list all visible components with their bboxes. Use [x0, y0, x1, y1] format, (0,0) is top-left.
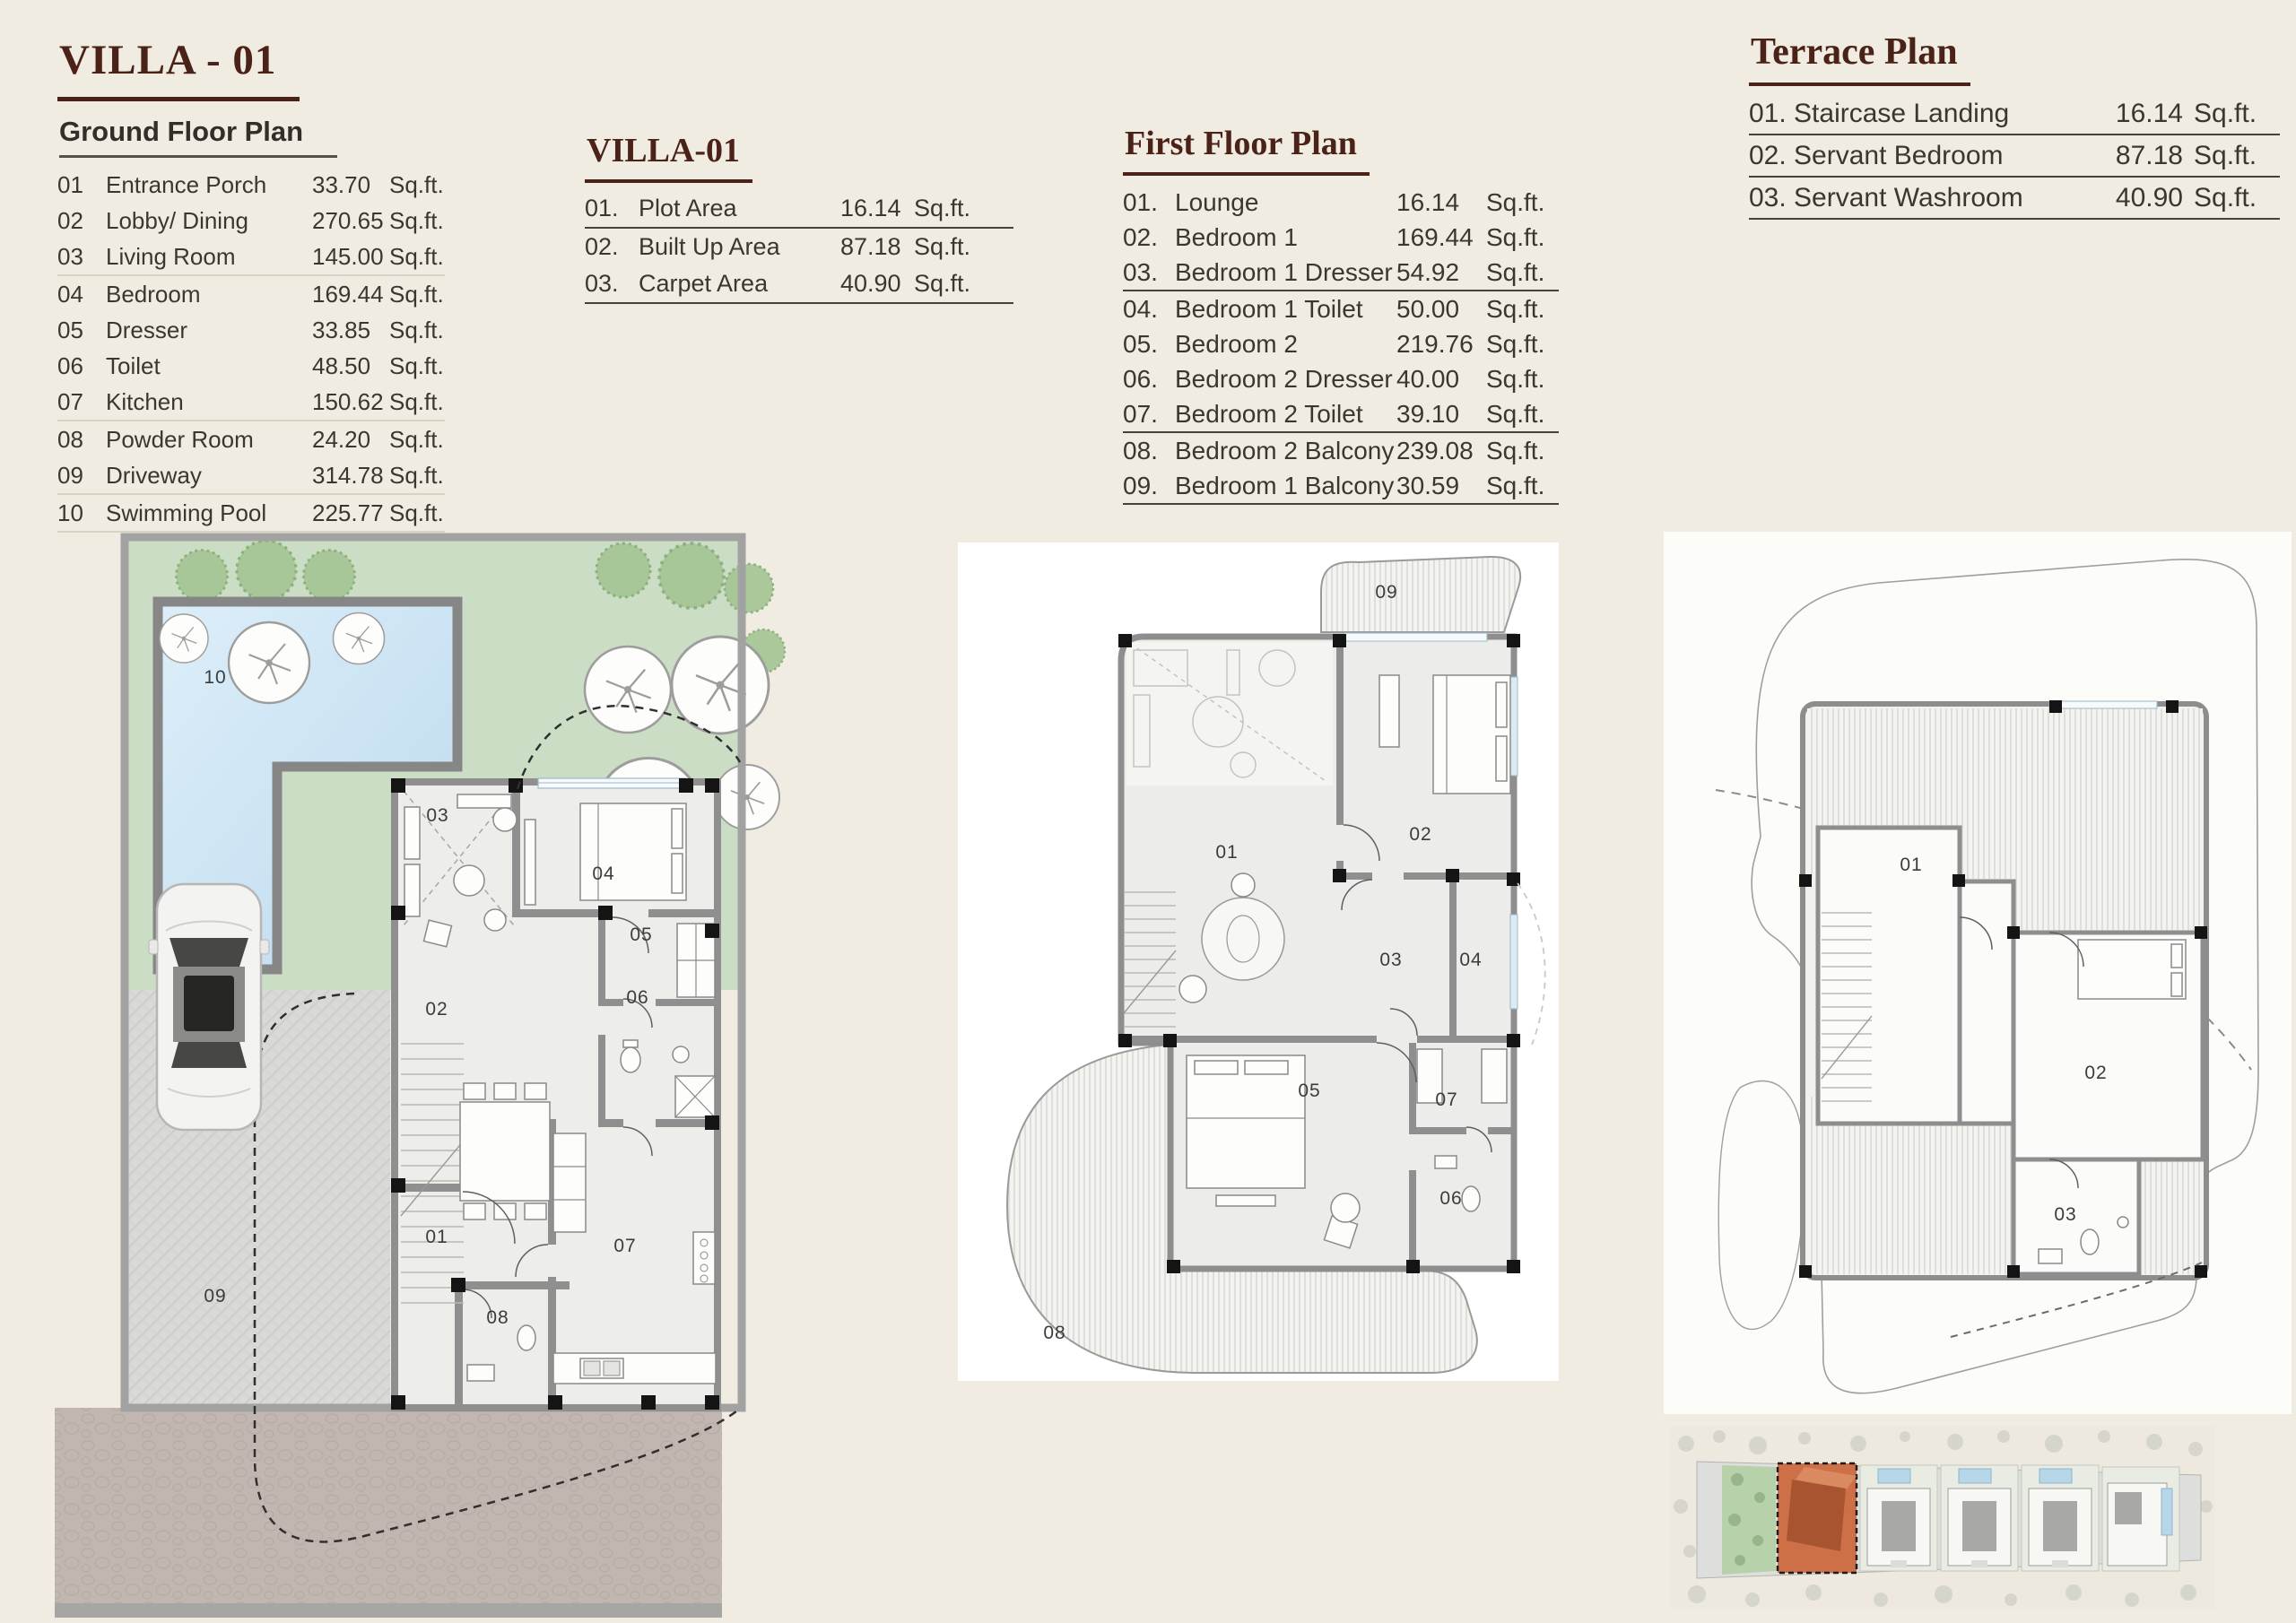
cell-name: 02. Servant Bedroom	[1749, 141, 2083, 171]
cell-num: 03	[57, 243, 106, 271]
cell-value: 39.10	[1396, 400, 1486, 429]
ground-building	[391, 778, 719, 1410]
cell-value: 16.14	[840, 195, 914, 222]
cell-value: 150.62	[312, 388, 389, 416]
cell-unit: Sq.ft.	[914, 233, 1013, 261]
cell-name: Carpet Area	[639, 270, 840, 298]
room-number-label: 08	[1043, 1323, 1065, 1343]
staircase-landing-room	[1818, 828, 1960, 1124]
villa-info-title: VILLA-01	[585, 131, 752, 183]
site-plan-drawing	[1670, 1426, 2215, 1610]
table-row: 02.Built Up Area87.18Sq.ft.	[585, 229, 1013, 265]
cell-name: 01. Staircase Landing	[1749, 99, 2083, 129]
room-number-label: 09	[1375, 582, 1397, 603]
table-row: 01. Staircase Landing16.14Sq.ft.	[1749, 93, 2280, 135]
table-row: 03.Carpet Area40.90Sq.ft.	[585, 265, 1013, 304]
balcony-09	[1321, 557, 1520, 632]
cell-value: 219.76	[1396, 330, 1486, 359]
cell-num: 05	[57, 317, 106, 344]
terrace-plan-drawing: 010203	[1664, 532, 2292, 1414]
cell-name: Entrance Porch	[106, 171, 312, 199]
cell-value: 54.92	[1396, 258, 1486, 287]
cell-num: 04	[57, 281, 106, 308]
cell-unit: Sq.ft.	[389, 171, 445, 199]
cell-num: 09.	[1123, 472, 1175, 500]
cell-value: 40.90	[840, 270, 914, 298]
room-number-label: 03	[2054, 1204, 2076, 1225]
cell-num: 06	[57, 352, 106, 380]
cell-unit: Sq.ft.	[389, 388, 445, 416]
cell-value: 145.00	[312, 243, 389, 271]
cell-value: 33.85	[312, 317, 389, 344]
villa-title: VILLA - 01	[57, 36, 300, 101]
cell-num: 04.	[1123, 295, 1175, 324]
room-number-label: 06	[626, 987, 648, 1008]
cell-value: 87.18	[2083, 141, 2183, 171]
table-row: 05.Bedroom 2219.76Sq.ft.	[1123, 326, 1559, 361]
room-number-label: 03	[1379, 950, 1402, 970]
cell-num: 07	[57, 388, 106, 416]
room-number-label: 10	[204, 667, 226, 688]
room-number-label: 05	[630, 924, 652, 945]
cell-unit: Sq.ft.	[1486, 330, 1559, 359]
cell-num: 03.	[585, 270, 639, 298]
terrace-table: 01. Staircase Landing16.14Sq.ft.02. Serv…	[1749, 93, 2280, 220]
first-floor-title: First Floor Plan	[1123, 124, 1370, 176]
cell-value: 270.65	[312, 207, 389, 235]
first-floor-section: First Floor Plan 01.Lounge16.14Sq.ft.02.…	[1123, 124, 1559, 505]
cell-unit: Sq.ft.	[389, 317, 445, 344]
table-row: 02.Bedroom 1169.44Sq.ft.	[1123, 220, 1559, 255]
ground-floor-section: VILLA - 01 Ground Floor Plan 01Entrance …	[57, 36, 445, 533]
cell-value: 239.08	[1396, 437, 1486, 465]
cell-num: 02	[57, 207, 106, 235]
cell-unit: Sq.ft.	[1486, 258, 1559, 287]
cell-unit: Sq.ft.	[2183, 141, 2280, 171]
site-villa-highlighted	[1778, 1463, 1857, 1573]
cell-num: 08	[57, 426, 106, 454]
road-edge-strip	[55, 1603, 722, 1618]
table-row: 02. Servant Bedroom87.18Sq.ft.	[1749, 135, 2280, 178]
cell-unit: Sq.ft.	[389, 426, 445, 454]
cell-num: 02.	[1123, 223, 1175, 252]
table-row: 01.Lounge16.14Sq.ft.	[1123, 185, 1559, 220]
table-row: 09Driveway314.78Sq.ft.	[57, 457, 445, 495]
cell-name: Bedroom 1 Dresser	[1175, 258, 1396, 287]
cell-unit: Sq.ft.	[1486, 295, 1559, 324]
cell-unit: Sq.ft.	[1486, 365, 1559, 394]
table-row: 03. Servant Washroom40.90Sq.ft.	[1749, 178, 2280, 220]
table-row: 07Kitchen150.62Sq.ft.	[57, 384, 445, 421]
cell-unit: Sq.ft.	[389, 499, 445, 527]
cell-value: 314.78	[312, 462, 389, 490]
terrace-section: Terrace Plan 01. Staircase Landing16.14S…	[1749, 30, 2280, 220]
cell-unit: Sq.ft.	[914, 195, 1013, 222]
table-row: 01Entrance Porch33.70Sq.ft.	[57, 167, 445, 203]
cell-name: Bedroom 1 Balcony	[1175, 472, 1396, 500]
cell-name: Bedroom 2 Dresser	[1175, 365, 1396, 394]
cell-name: Bedroom 1	[1175, 223, 1396, 252]
cell-value: 225.77	[312, 499, 389, 527]
cell-name: Built Up Area	[639, 233, 840, 261]
table-row: 08.Bedroom 2 Balcony239.08Sq.ft.	[1123, 433, 1559, 468]
cell-name: Plot Area	[639, 195, 840, 222]
cell-name: Powder Room	[106, 426, 312, 454]
cell-name: Bedroom 2 Toilet	[1175, 400, 1396, 429]
cell-name: Dresser	[106, 317, 312, 344]
cell-unit: Sq.ft.	[389, 462, 445, 490]
table-row: 06Toilet48.50Sq.ft.	[57, 348, 445, 384]
cell-unit: Sq.ft.	[1486, 400, 1559, 429]
cell-num: 01.	[1123, 188, 1175, 217]
cell-num: 01	[57, 171, 106, 199]
cell-name: Bedroom 2 Balcony	[1175, 437, 1396, 465]
room-number-label: 02	[425, 999, 448, 1020]
cell-name: Lounge	[1175, 188, 1396, 217]
cell-name: Bedroom 1 Toilet	[1175, 295, 1396, 324]
car	[149, 884, 269, 1130]
cell-num: 09	[57, 462, 106, 490]
cell-unit: Sq.ft.	[2183, 99, 2280, 129]
cell-unit: Sq.ft.	[389, 281, 445, 308]
cell-num: 02.	[585, 233, 639, 261]
cell-value: 169.44	[1396, 223, 1486, 252]
cell-value: 48.50	[312, 352, 389, 380]
cell-num: 10	[57, 499, 106, 527]
cell-value: 30.59	[1396, 472, 1486, 500]
table-row: 03.Bedroom 1 Dresser54.92Sq.ft.	[1123, 255, 1559, 291]
terrace-title: Terrace Plan	[1749, 30, 1970, 86]
table-row: 07.Bedroom 2 Toilet39.10Sq.ft.	[1123, 396, 1559, 433]
cell-unit: Sq.ft.	[1486, 437, 1559, 465]
cell-num: 08.	[1123, 437, 1175, 465]
first-floor-table: 01.Lounge16.14Sq.ft.02.Bedroom 1169.44Sq…	[1123, 185, 1559, 505]
cell-name: Kitchen	[106, 388, 312, 416]
cell-name: Swimming Pool	[106, 499, 312, 527]
room-number-label: 05	[1298, 1081, 1320, 1101]
terrace-deck	[1799, 700, 2207, 1278]
table-row: 09.Bedroom 1 Balcony30.59Sq.ft.	[1123, 468, 1559, 505]
cell-value: 40.00	[1396, 365, 1486, 394]
cell-num: 05.	[1123, 330, 1175, 359]
villa-info-section: VILLA-01 01.Plot Area16.14Sq.ft.02.Built…	[585, 131, 1013, 304]
room-number-label: 04	[1459, 950, 1482, 970]
table-row: 06.Bedroom 2 Dresser40.00Sq.ft.	[1123, 361, 1559, 396]
cell-unit: Sq.ft.	[389, 243, 445, 271]
cell-name: Bedroom 2	[1175, 330, 1396, 359]
room-number-label: 09	[204, 1286, 226, 1306]
cell-name: Living Room	[106, 243, 312, 271]
cell-num: 01.	[585, 195, 639, 222]
cell-value: 50.00	[1396, 295, 1486, 324]
cell-unit: Sq.ft.	[1486, 188, 1559, 217]
room-number-label: 07	[1435, 1089, 1457, 1110]
room-number-label: 02	[2084, 1063, 2107, 1083]
room-number-label: 01	[1900, 855, 1922, 875]
table-row: 02Lobby/ Dining270.65Sq.ft.	[57, 203, 445, 239]
table-row: 05Dresser33.85Sq.ft.	[57, 312, 445, 348]
room-number-label: 01	[1215, 842, 1238, 863]
cell-value: 33.70	[312, 171, 389, 199]
cell-unit: Sq.ft.	[1486, 472, 1559, 500]
cell-value: 87.18	[840, 233, 914, 261]
room-number-label: 04	[592, 864, 614, 884]
room-number-label: 02	[1409, 824, 1431, 845]
first-floor-plan-drawing: 010203040506070809	[958, 542, 1559, 1381]
ground-floor-subtitle: Ground Floor Plan	[59, 116, 337, 158]
cell-value: 16.14	[1396, 188, 1486, 217]
cell-unit: Sq.ft.	[2183, 183, 2280, 213]
cell-name: 03. Servant Washroom	[1749, 183, 2083, 213]
room-number-label: 07	[613, 1236, 636, 1256]
room-number-label: 01	[425, 1227, 448, 1247]
cell-num: 03.	[1123, 258, 1175, 287]
cell-value: 169.44	[312, 281, 389, 308]
cell-value: 16.14	[2083, 99, 2183, 129]
cell-num: 06.	[1123, 365, 1175, 394]
table-row: 01.Plot Area16.14Sq.ft.	[585, 190, 1013, 229]
cell-name: Toilet	[106, 352, 312, 380]
cell-unit: Sq.ft.	[389, 207, 445, 235]
room-number-label: 03	[426, 805, 448, 826]
table-row: 04Bedroom169.44Sq.ft.	[57, 276, 445, 312]
cell-unit: Sq.ft.	[914, 270, 1013, 298]
cell-name: Driveway	[106, 462, 312, 490]
villa-info-table: 01.Plot Area16.14Sq.ft.02.Built Up Area8…	[585, 190, 1013, 304]
cell-name: Lobby/ Dining	[106, 207, 312, 235]
cell-num: 07.	[1123, 400, 1175, 429]
table-row: 04.Bedroom 1 Toilet50.00Sq.ft.	[1123, 291, 1559, 326]
cell-value: 40.90	[2083, 183, 2183, 213]
cell-name: Bedroom	[106, 281, 312, 308]
cell-value: 24.20	[312, 426, 389, 454]
ground-floor-table: 01Entrance Porch33.70Sq.ft.02Lobby/ Dini…	[57, 167, 445, 533]
table-row: 03Living Room145.00Sq.ft.	[57, 239, 445, 276]
room-number-label: 06	[1439, 1188, 1462, 1209]
cell-unit: Sq.ft.	[1486, 223, 1559, 252]
table-row: 08Powder Room24.20Sq.ft.	[57, 421, 445, 457]
room-number-label: 08	[486, 1307, 509, 1328]
cell-unit: Sq.ft.	[389, 352, 445, 380]
ground-floor-plan-drawing: 10030405060708010209	[49, 524, 816, 1623]
